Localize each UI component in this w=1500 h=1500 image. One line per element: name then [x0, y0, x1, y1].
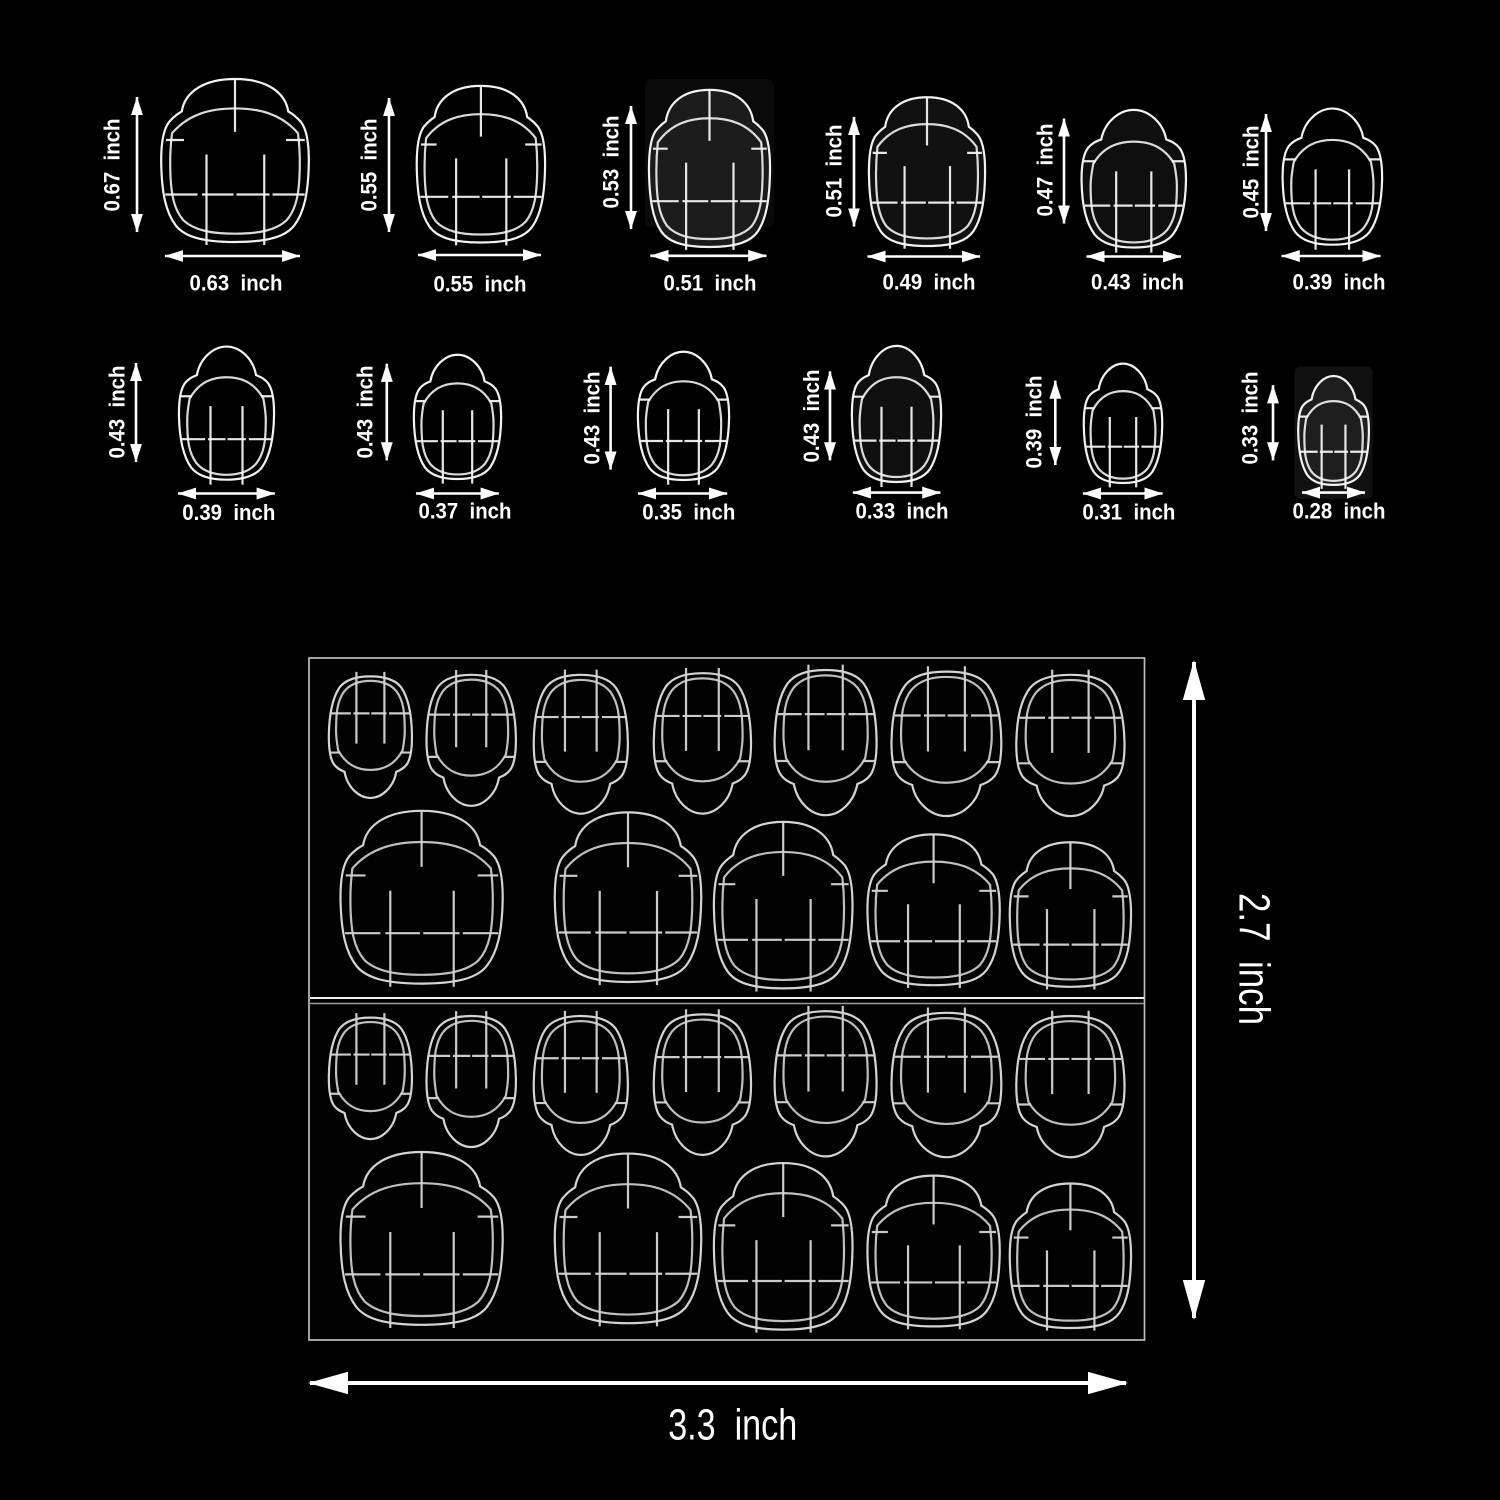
svg-text:0.67 inch: 0.67 inch [100, 119, 125, 212]
svg-text:0.31 inch: 0.31 inch [1082, 499, 1175, 524]
svg-text:0.49 inch: 0.49 inch [883, 270, 976, 295]
svg-text:0.33 inch: 0.33 inch [1238, 372, 1263, 465]
svg-text:0.51 inch: 0.51 inch [822, 125, 847, 218]
svg-text:0.39 inch: 0.39 inch [182, 500, 275, 525]
svg-text:0.43 inch: 0.43 inch [799, 370, 824, 463]
svg-text:3.3 inch: 3.3 inch [668, 1400, 797, 1449]
svg-text:0.47 inch: 0.47 inch [1033, 124, 1058, 217]
svg-text:0.35 inch: 0.35 inch [642, 499, 735, 524]
svg-text:0.63 inch: 0.63 inch [190, 271, 283, 296]
svg-text:2.7 inch: 2.7 inch [1230, 893, 1279, 1025]
svg-text:0.53 inch: 0.53 inch [599, 116, 624, 209]
svg-text:0.55 inch: 0.55 inch [357, 119, 382, 212]
svg-text:0.45 inch: 0.45 inch [1239, 126, 1264, 219]
svg-text:0.51 inch: 0.51 inch [664, 271, 757, 296]
svg-text:0.43 inch: 0.43 inch [353, 366, 378, 459]
svg-text:0.43 inch: 0.43 inch [105, 366, 130, 459]
svg-text:0.39 inch: 0.39 inch [1293, 270, 1386, 295]
svg-text:0.55 inch: 0.55 inch [434, 272, 527, 297]
svg-text:0.43 inch: 0.43 inch [580, 372, 605, 465]
svg-text:0.39 inch: 0.39 inch [1022, 376, 1047, 469]
svg-text:0.43 inch: 0.43 inch [1091, 270, 1184, 295]
svg-text:0.33 inch: 0.33 inch [856, 499, 949, 524]
svg-text:0.28 inch: 0.28 inch [1293, 499, 1386, 524]
svg-text:0.37 inch: 0.37 inch [419, 499, 512, 524]
